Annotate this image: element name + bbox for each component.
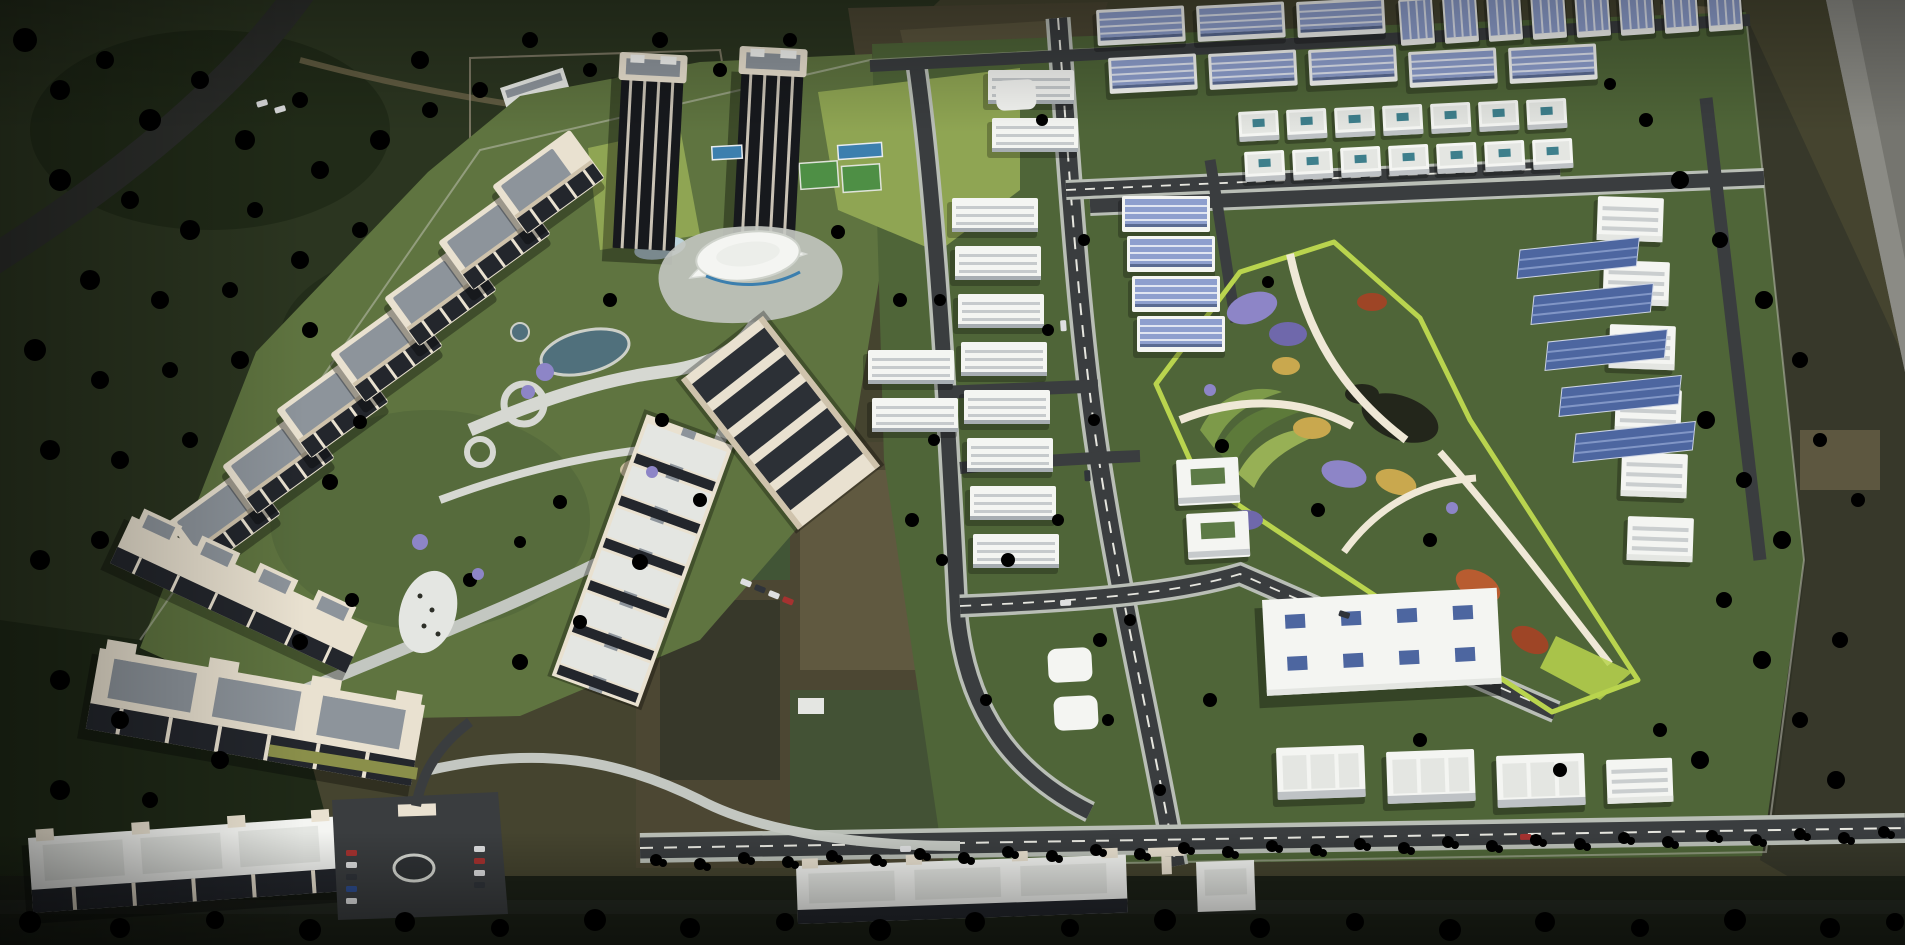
township-scene (0, 0, 1905, 945)
edge-vignette (0, 0, 1905, 945)
vignette-bottom (0, 0, 1905, 945)
aerial-render (0, 0, 1905, 945)
